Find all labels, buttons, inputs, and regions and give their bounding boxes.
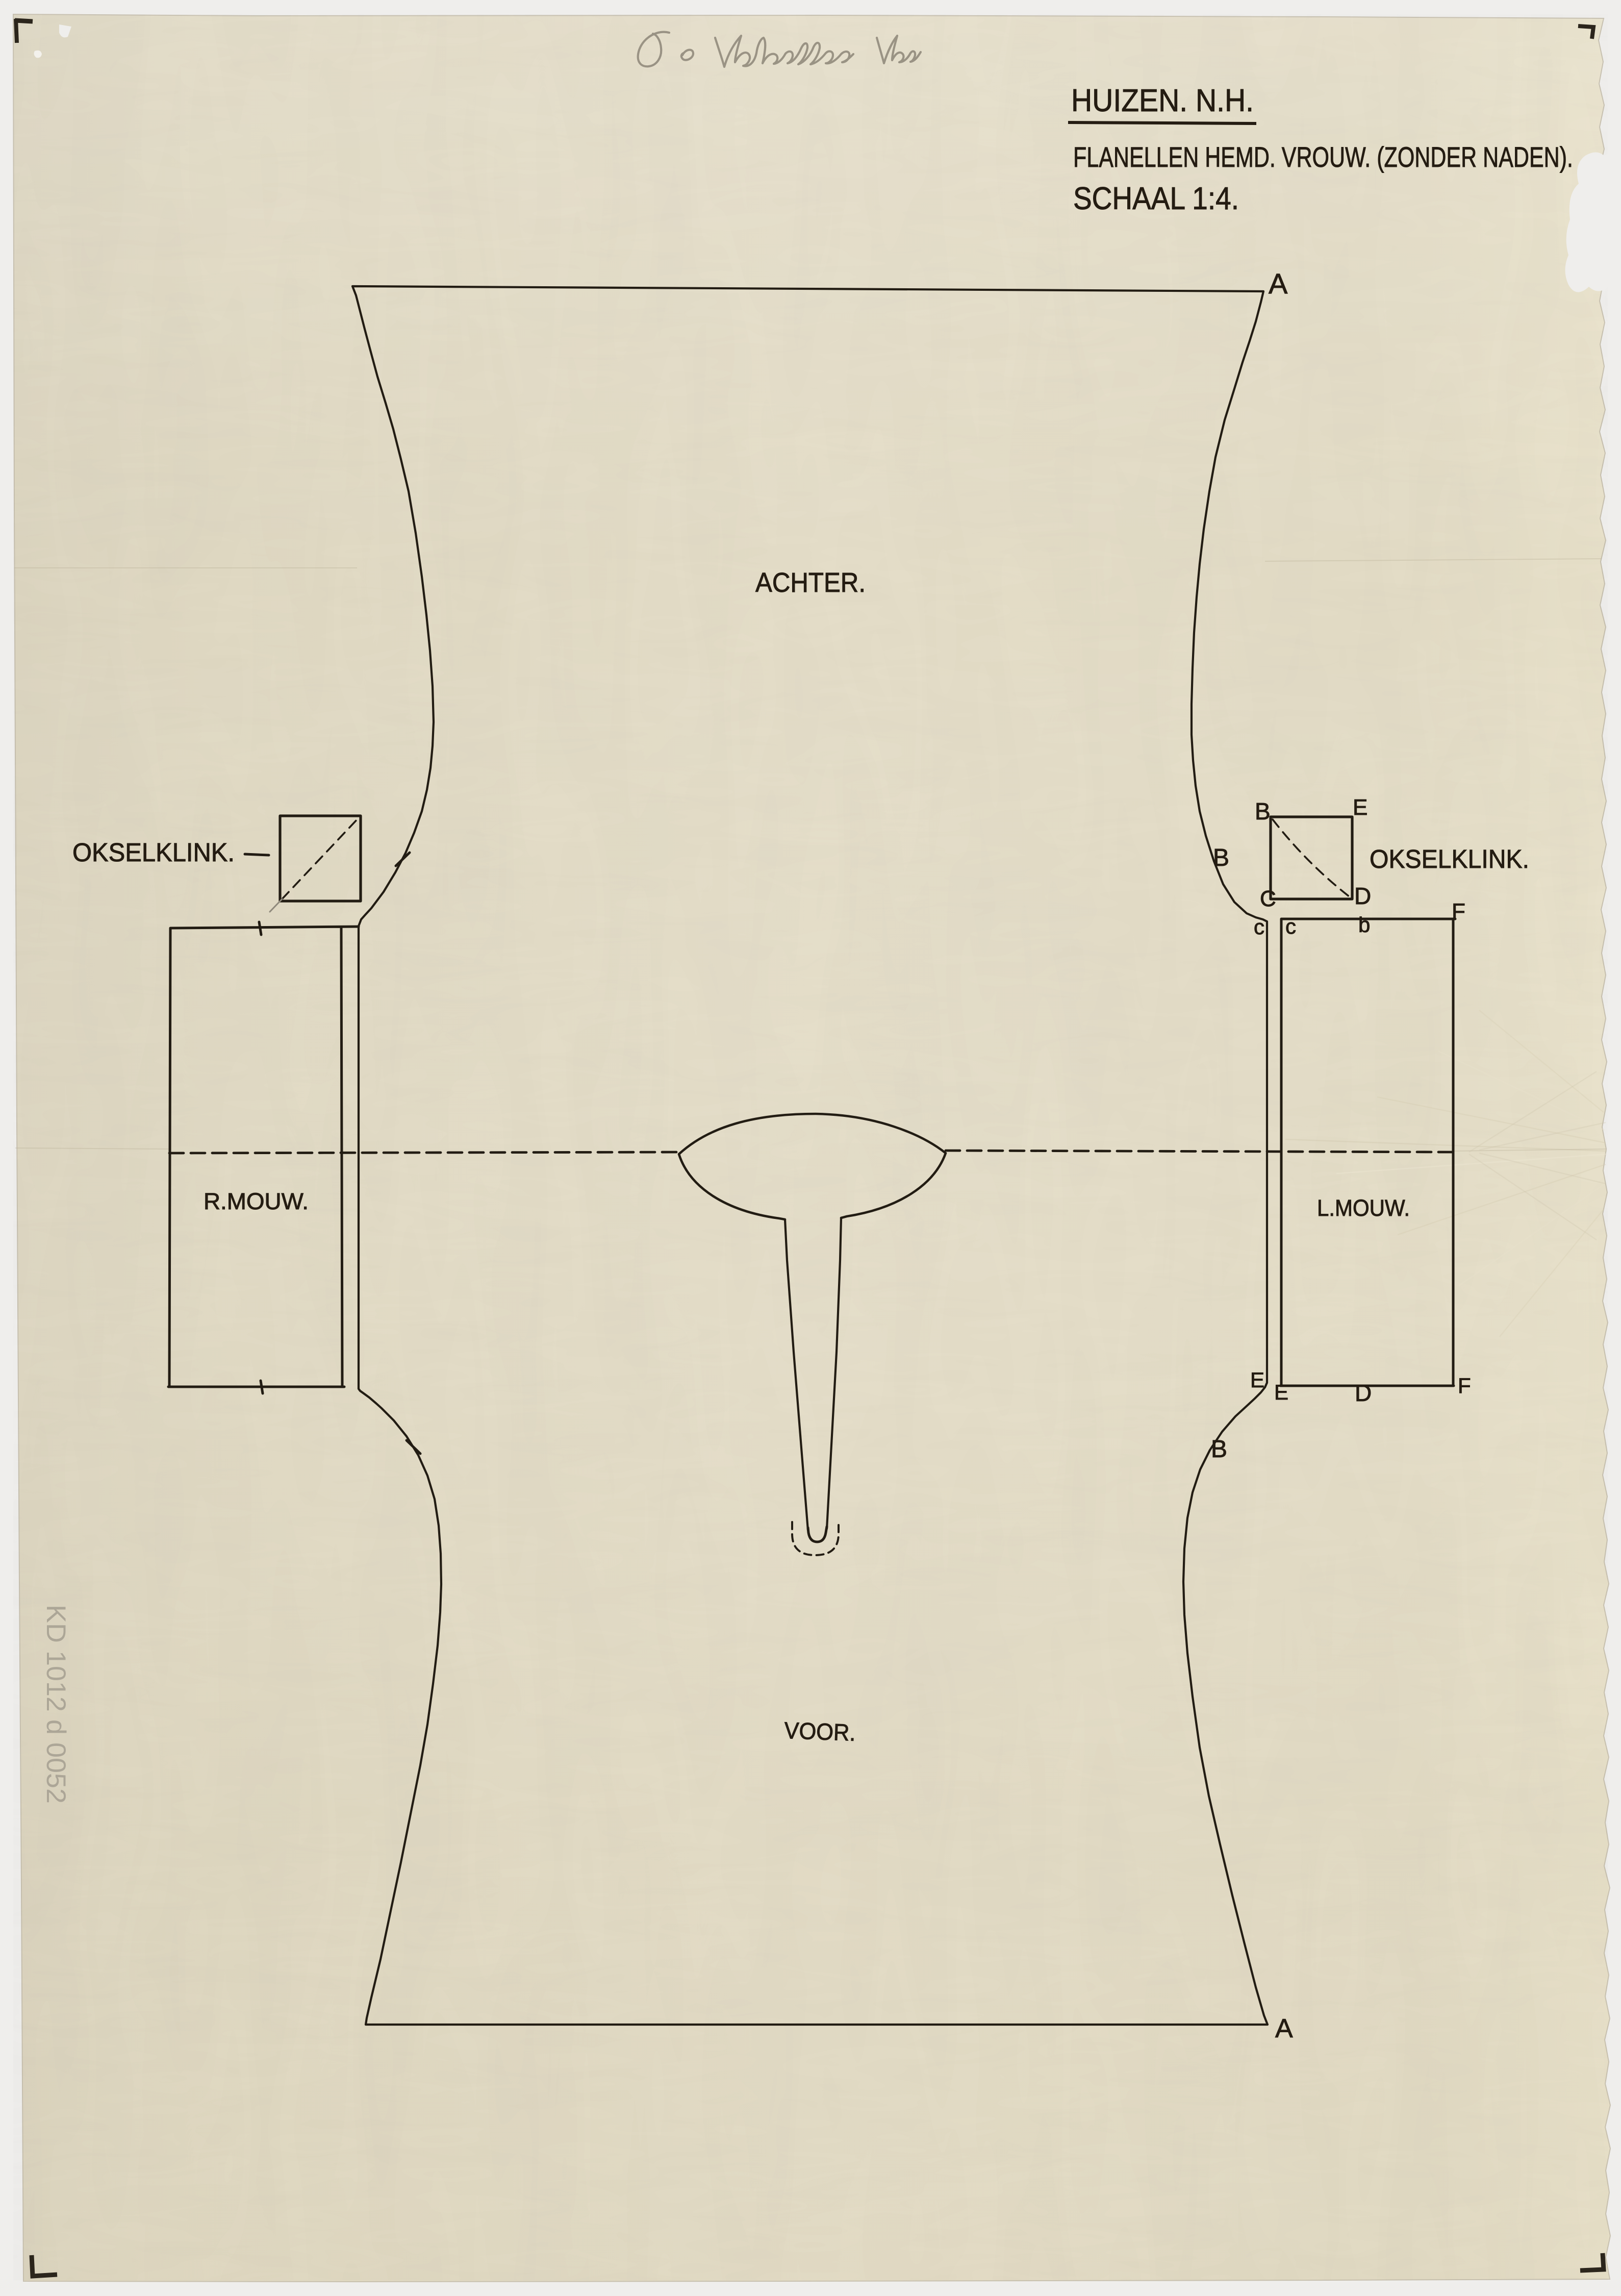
svg-text:E: E [1353,795,1367,820]
svg-text:F: F [1452,899,1465,924]
svg-text:L.MOUW.: L.MOUW. [1317,1195,1410,1221]
svg-text:OKSELKLINK.: OKSELKLINK. [72,838,235,867]
svg-text:b: b [1358,913,1370,937]
svg-text:HUIZEN. N.H.: HUIZEN. N.H. [1071,83,1254,118]
svg-text:ACHTER.: ACHTER. [755,567,866,598]
svg-text:R.MOUW.: R.MOUW. [204,1188,309,1214]
svg-text:B: B [1255,798,1271,825]
svg-text:D: D [1354,883,1371,909]
svg-text:c: c [1254,915,1264,939]
svg-text:E: E [1250,1368,1264,1392]
svg-text:E: E [1274,1380,1288,1404]
svg-text:VOOR.: VOOR. [784,1717,856,1746]
svg-text:A: A [1275,2014,1293,2043]
svg-text:D: D [1355,1380,1372,1406]
svg-text:FLANELLEN HEMD. VROUW. (ZONDER: FLANELLEN HEMD. VROUW. (ZONDER NADEN). [1073,141,1573,173]
svg-text:F: F [1458,1374,1471,1397]
svg-text:SCHAAL 1:4.: SCHAAL 1:4. [1073,181,1239,216]
svg-text:OKSELKLINK.: OKSELKLINK. [1370,844,1529,874]
svg-text:C: C [1260,886,1276,911]
svg-text:KD 1012 d 0052: KD 1012 d 0052 [41,1605,71,1804]
svg-text:c: c [1285,914,1296,938]
svg-text:A: A [1269,267,1288,300]
svg-text:B: B [1213,844,1229,871]
svg-text:B: B [1211,1436,1227,1463]
